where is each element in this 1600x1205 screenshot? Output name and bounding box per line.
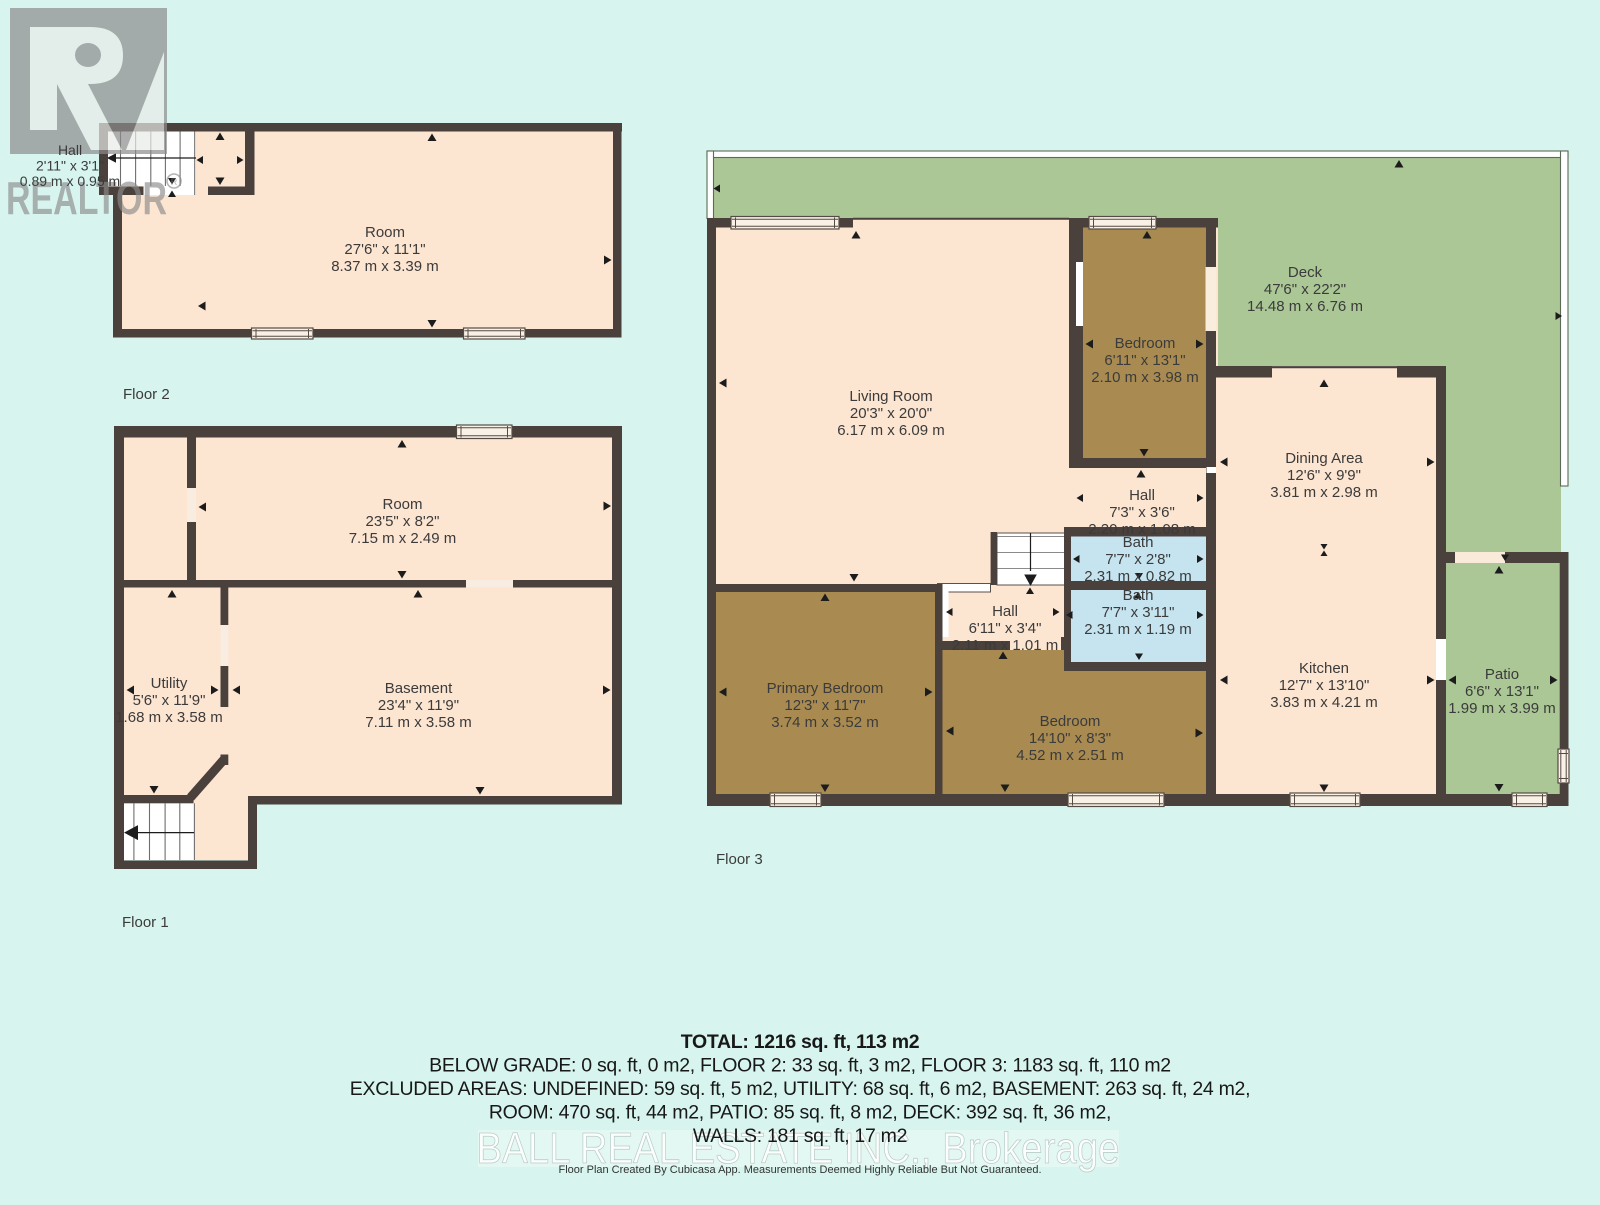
svg-text:27'6" x 11'1": 27'6" x 11'1" [344, 241, 425, 258]
svg-text:Hall: Hall [1129, 487, 1155, 504]
svg-text:3.74 m x 3.52 m: 3.74 m x 3.52 m [771, 714, 879, 731]
svg-text:12'7" x 13'10": 12'7" x 13'10" [1279, 677, 1370, 694]
svg-text:7'7" x 2'8": 7'7" x 2'8" [1105, 551, 1171, 568]
svg-text:5'6" x 11'9": 5'6" x 11'9" [133, 692, 206, 709]
svg-text:Floor 3: Floor 3 [716, 851, 763, 868]
svg-text:47'6" x 22'2": 47'6" x 22'2" [1264, 281, 1346, 298]
svg-text:Primary Bedroom: Primary Bedroom [767, 680, 884, 697]
svg-text:8.37 m x 3.39 m: 8.37 m x 3.39 m [331, 258, 439, 275]
svg-text:EXCLUDED AREAS: UNDEFINED: 59: EXCLUDED AREAS: UNDEFINED: 59 sq. ft, 5 … [350, 1078, 1250, 1100]
svg-text:TOTAL: 1216 sq. ft, 113 m2: TOTAL: 1216 sq. ft, 113 m2 [681, 1031, 920, 1053]
svg-text:2.11 m x 1.01 m: 2.11 m x 1.01 m [952, 637, 1058, 654]
svg-text:Hall: Hall [58, 142, 82, 158]
svg-text:Room: Room [382, 496, 422, 513]
svg-text:Utility: Utility [151, 675, 188, 692]
svg-text:6'11" x 13'1": 6'11" x 13'1" [1104, 352, 1185, 369]
svg-text:2.10 m x 3.98 m: 2.10 m x 3.98 m [1091, 369, 1199, 386]
svg-text:Basement: Basement [385, 680, 453, 697]
svg-text:Floor 1: Floor 1 [122, 914, 169, 931]
svg-text:7'3" x 3'6": 7'3" x 3'6" [1109, 504, 1175, 521]
svg-text:0.89 m x 0.95 m: 0.89 m x 0.95 m [20, 173, 120, 189]
svg-text:7'7" x 3'11": 7'7" x 3'11" [1102, 604, 1175, 621]
svg-text:7.15 m x 2.49 m: 7.15 m x 2.49 m [349, 530, 457, 547]
svg-text:3.83 m x 4.21 m: 3.83 m x 4.21 m [1270, 694, 1378, 711]
svg-text:3.81 m x 2.98 m: 3.81 m x 2.98 m [1270, 484, 1378, 501]
svg-text:Bath: Bath [1123, 587, 1154, 604]
svg-text:Bedroom: Bedroom [1115, 335, 1176, 352]
svg-text:Bath: Bath [1123, 534, 1154, 551]
svg-text:Deck: Deck [1288, 264, 1323, 281]
svg-text:R: R [171, 177, 178, 187]
svg-text:20'3" x 20'0": 20'3" x 20'0" [850, 405, 932, 422]
svg-text:4.52 m x 2.51 m: 4.52 m x 2.51 m [1016, 747, 1124, 764]
svg-text:12'6" x 9'9": 12'6" x 9'9" [1287, 467, 1361, 484]
svg-text:Kitchen: Kitchen [1299, 660, 1349, 677]
svg-text:14'10" x 8'3": 14'10" x 8'3" [1029, 730, 1111, 747]
svg-text:12'3" x 11'7": 12'3" x 11'7" [784, 697, 865, 714]
svg-text:ROOM: 470 sq. ft, 44 m2, PATIO: ROOM: 470 sq. ft, 44 m2, PATIO: 85 sq. f… [489, 1102, 1111, 1124]
svg-text:7.11 m x 3.58 m: 7.11 m x 3.58 m [365, 714, 471, 731]
svg-text:Living Room: Living Room [849, 388, 932, 405]
svg-text:Room: Room [365, 224, 405, 241]
svg-text:6'11" x 3'4": 6'11" x 3'4" [969, 620, 1042, 637]
svg-text:Floor Plan Created By Cubicasa: Floor Plan Created By Cubicasa App. Meas… [558, 1164, 1041, 1176]
svg-text:6.17 m x 6.09 m: 6.17 m x 6.09 m [837, 422, 945, 439]
svg-text:2.31 m x 0.82 m: 2.31 m x 0.82 m [1084, 568, 1192, 585]
svg-text:2'11" x 3'1": 2'11" x 3'1" [36, 158, 104, 174]
svg-text:WALLS: 181 sq. ft, 17 m2: WALLS: 181 sq. ft, 17 m2 [693, 1125, 907, 1147]
svg-text:14.48 m x 6.76 m: 14.48 m x 6.76 m [1247, 298, 1363, 315]
svg-text:BELOW GRADE: 0 sq. ft, 0 m2, F: BELOW GRADE: 0 sq. ft, 0 m2, FLOOR 2: 33… [429, 1055, 1171, 1077]
svg-text:Patio: Patio [1485, 666, 1519, 683]
svg-text:1.99 m x 3.99 m: 1.99 m x 3.99 m [1448, 700, 1556, 717]
svg-text:Floor 2: Floor 2 [123, 386, 170, 403]
svg-text:1.68 m x 3.58 m: 1.68 m x 3.58 m [115, 709, 223, 726]
svg-text:Dining Area: Dining Area [1285, 450, 1363, 467]
svg-text:23'5" x 8'2": 23'5" x 8'2" [366, 513, 440, 530]
svg-text:6'6" x 13'1": 6'6" x 13'1" [1465, 683, 1539, 700]
svg-text:2.31 m x 1.19 m: 2.31 m x 1.19 m [1084, 621, 1192, 638]
svg-text:23'4" x 11'9": 23'4" x 11'9" [378, 697, 459, 714]
svg-text:Hall: Hall [992, 603, 1018, 620]
svg-text:Bedroom: Bedroom [1040, 713, 1101, 730]
